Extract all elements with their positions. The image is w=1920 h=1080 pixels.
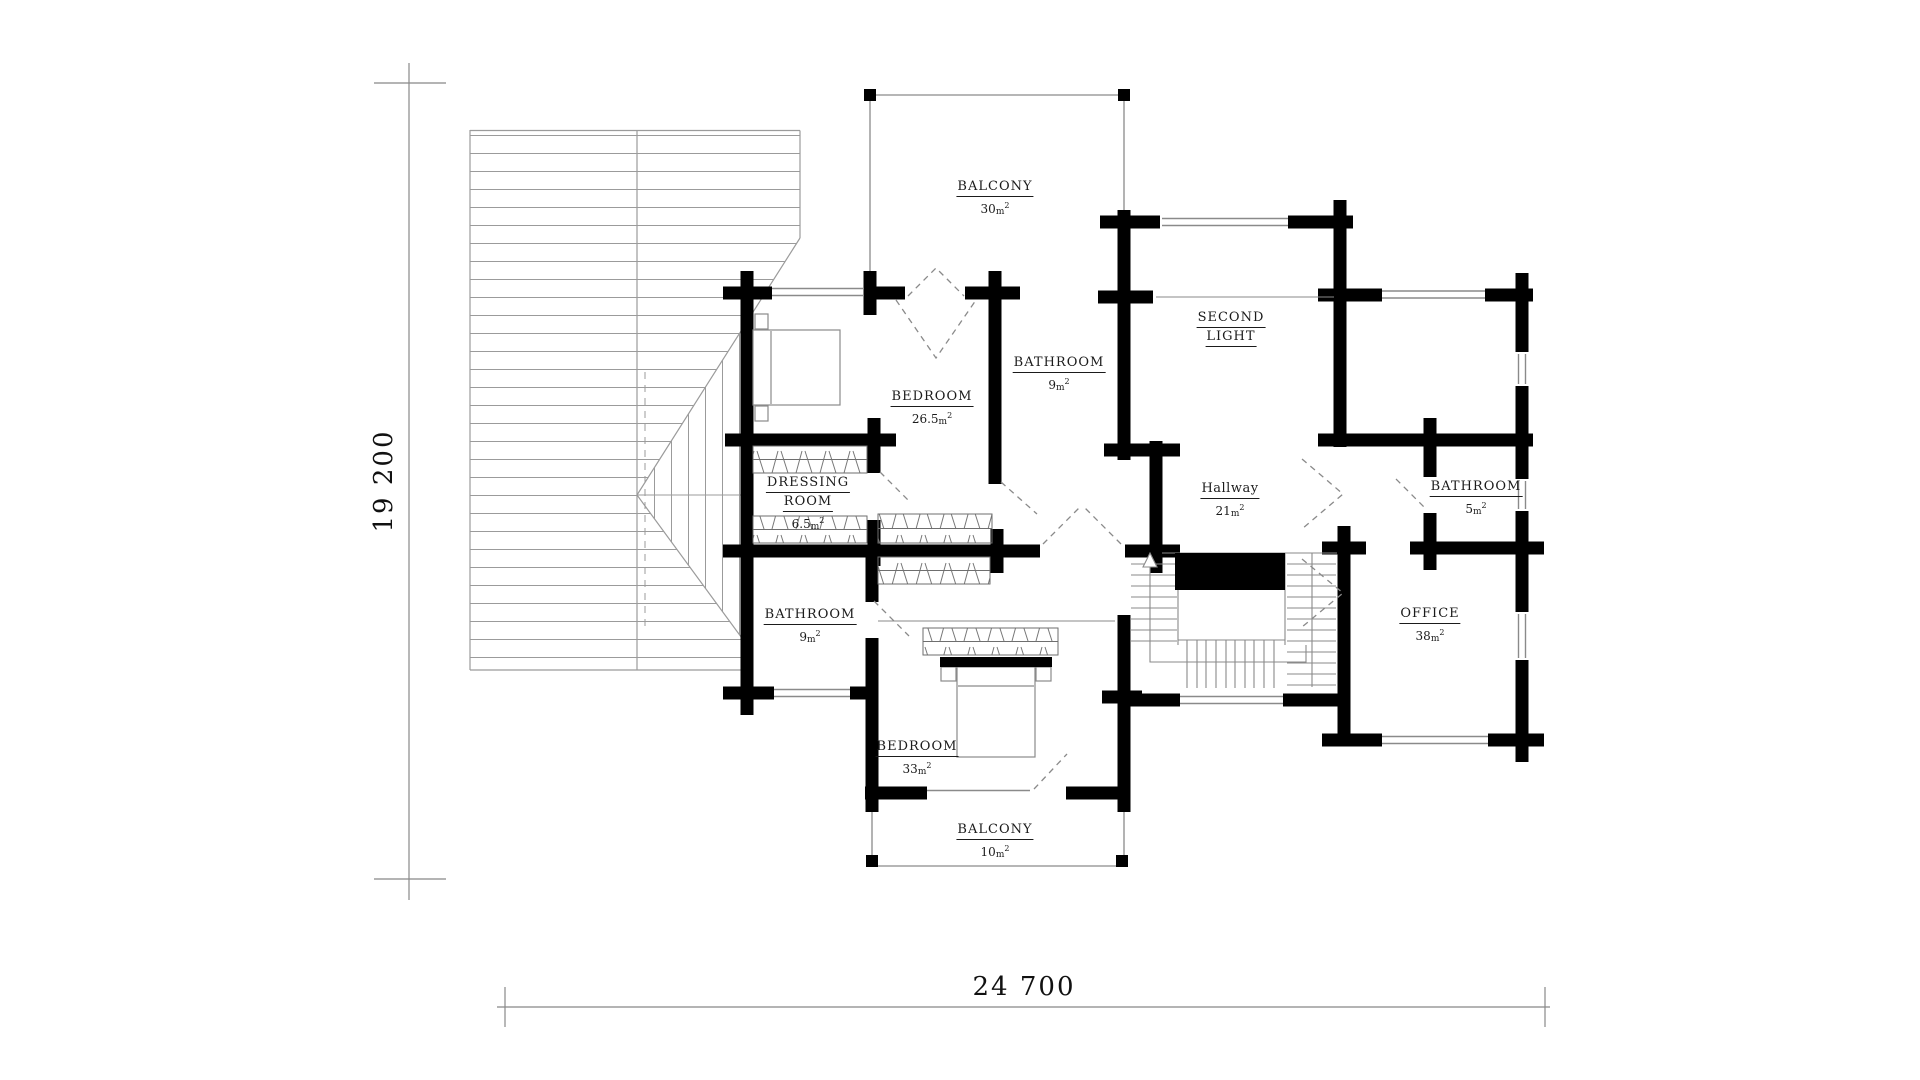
room-label-bedroom-south: BEDROOM 33m2 [876, 738, 959, 779]
room-label-office: OFFICE 38m2 [1399, 605, 1460, 646]
dimension-horizontal: 24 700 [973, 972, 1076, 1002]
room-label-bathroom-top: BATHROOM 9m2 [1013, 354, 1106, 395]
room-label-second-light: SECOND LIGHT [1197, 309, 1266, 347]
stair-void [1175, 553, 1285, 590]
room-label-balcony-bottom: BALCONY 10m2 [956, 821, 1033, 862]
room-label-balcony-top: BALCONY 30m2 [956, 178, 1033, 219]
dimension-vertical: 19 200 [369, 430, 399, 533]
room-label-hallway: Hallway 21m2 [1200, 480, 1259, 521]
bed-west [753, 314, 840, 421]
room-label-dressing-room: DRESSING ROOM 6.5m2 [766, 474, 850, 534]
staircase [1131, 553, 1337, 688]
room-label-bathroom-west: BATHROOM 9m2 [764, 606, 857, 647]
floor-plan-page: BALCONY 30m2 SECOND LIGHT BEDROOM 26.5m2… [0, 0, 1920, 1080]
floor-plan-drawing [0, 0, 1920, 1080]
room-label-bedroom-west: BEDROOM 26.5m2 [891, 388, 974, 429]
bed-headboard [940, 657, 1052, 667]
room-label-bathroom-east: BATHROOM 5m2 [1430, 478, 1523, 519]
